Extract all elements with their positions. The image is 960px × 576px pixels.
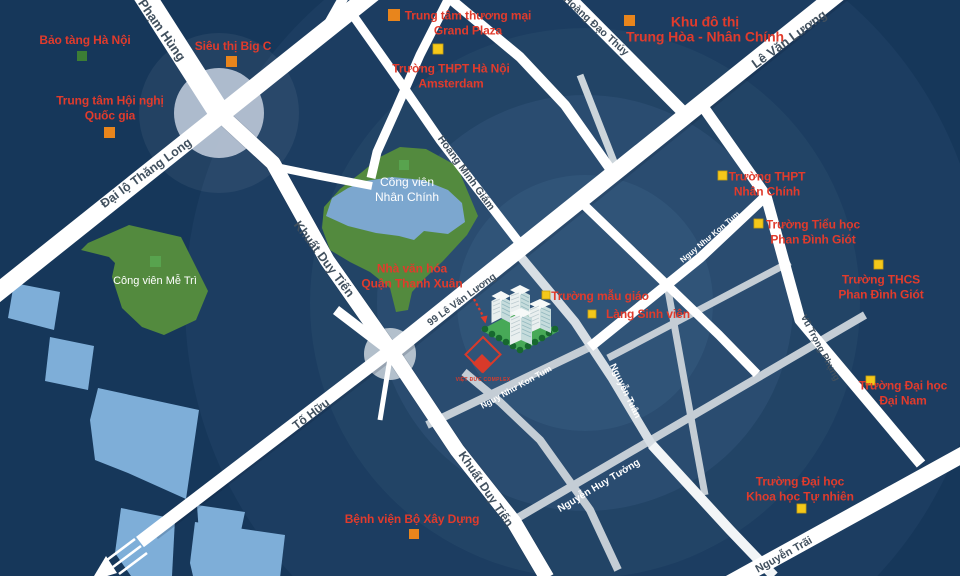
svg-text:VIỆT ĐỨC COMPLEX: VIỆT ĐỨC COMPLEX — [456, 375, 511, 383]
